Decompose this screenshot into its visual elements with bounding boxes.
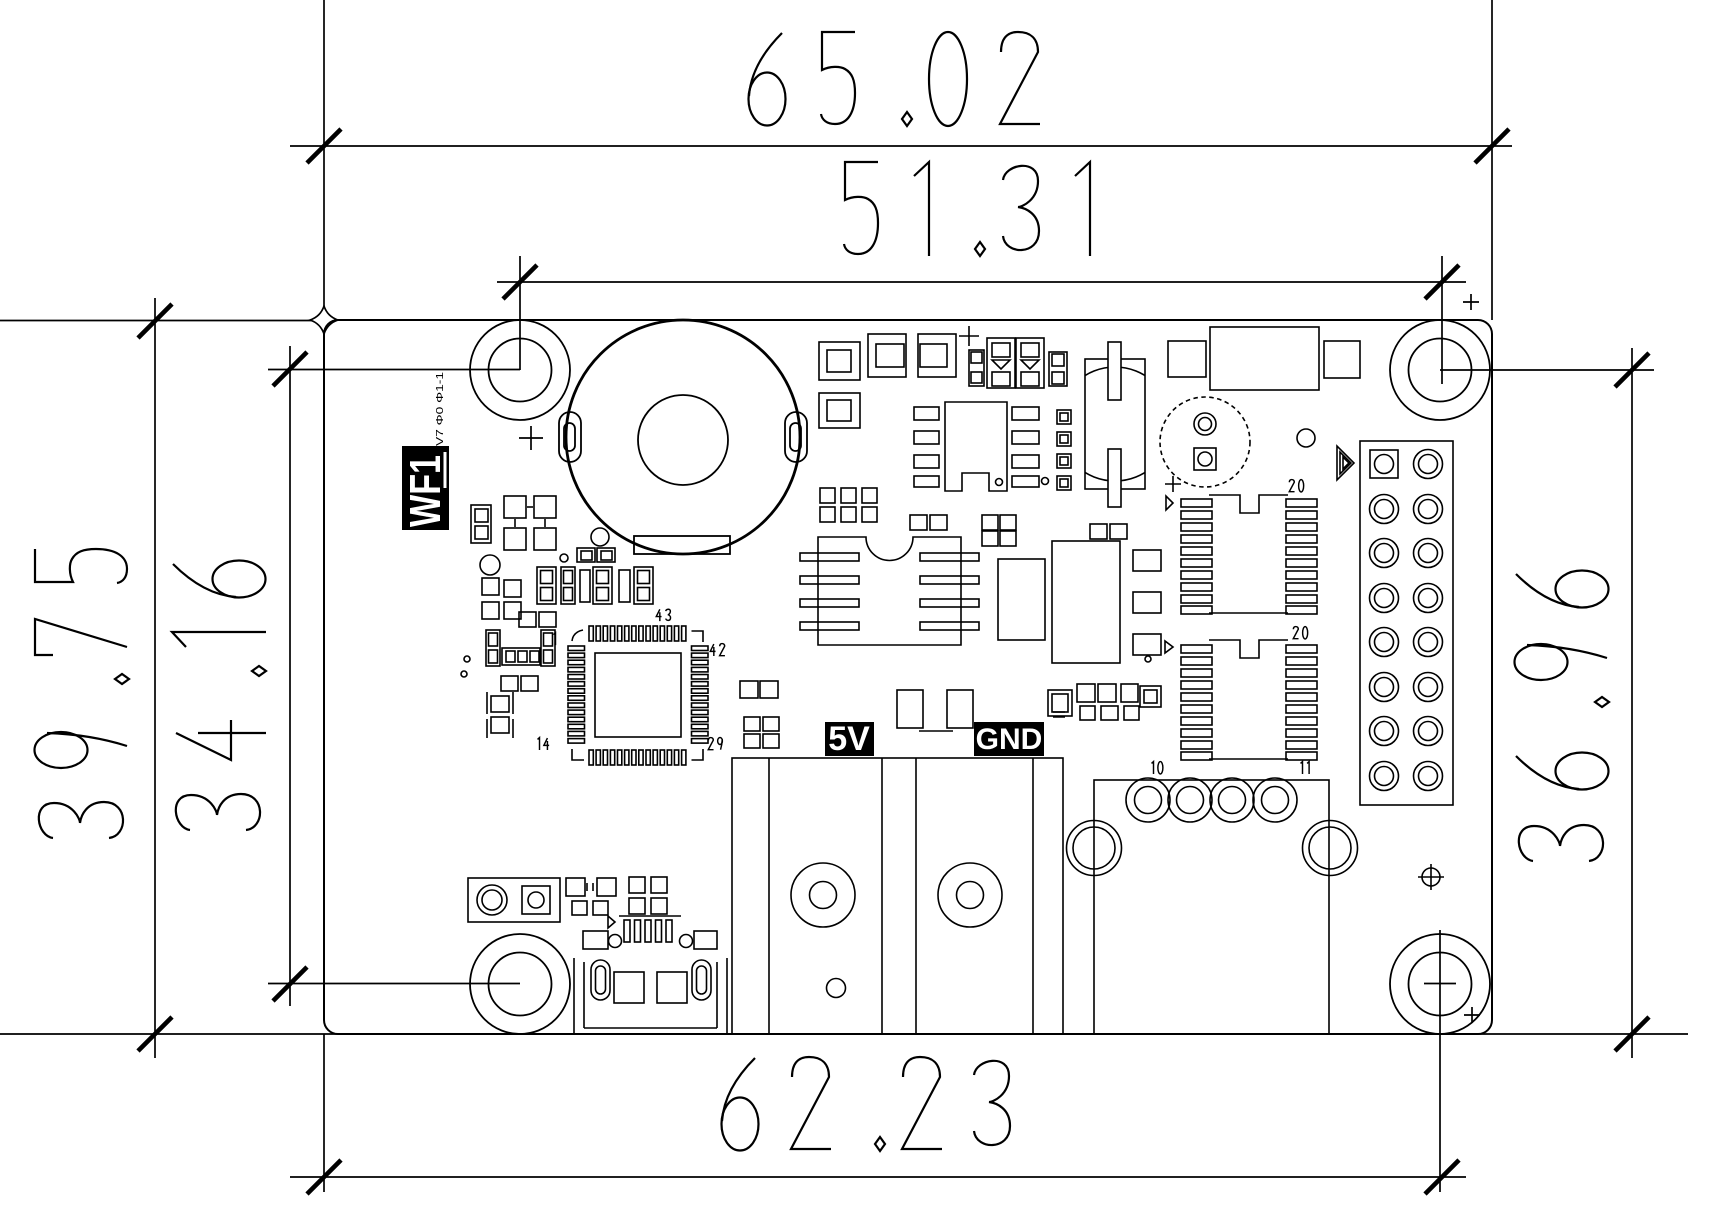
svg-text:V7 Φ0 Φ1-1: V7 Φ0 Φ1-1 <box>435 371 446 446</box>
svg-text:WF1: WF1 <box>401 455 450 527</box>
svg-text:GND: GND <box>976 723 1043 756</box>
svg-text:5V: 5V <box>828 720 870 758</box>
